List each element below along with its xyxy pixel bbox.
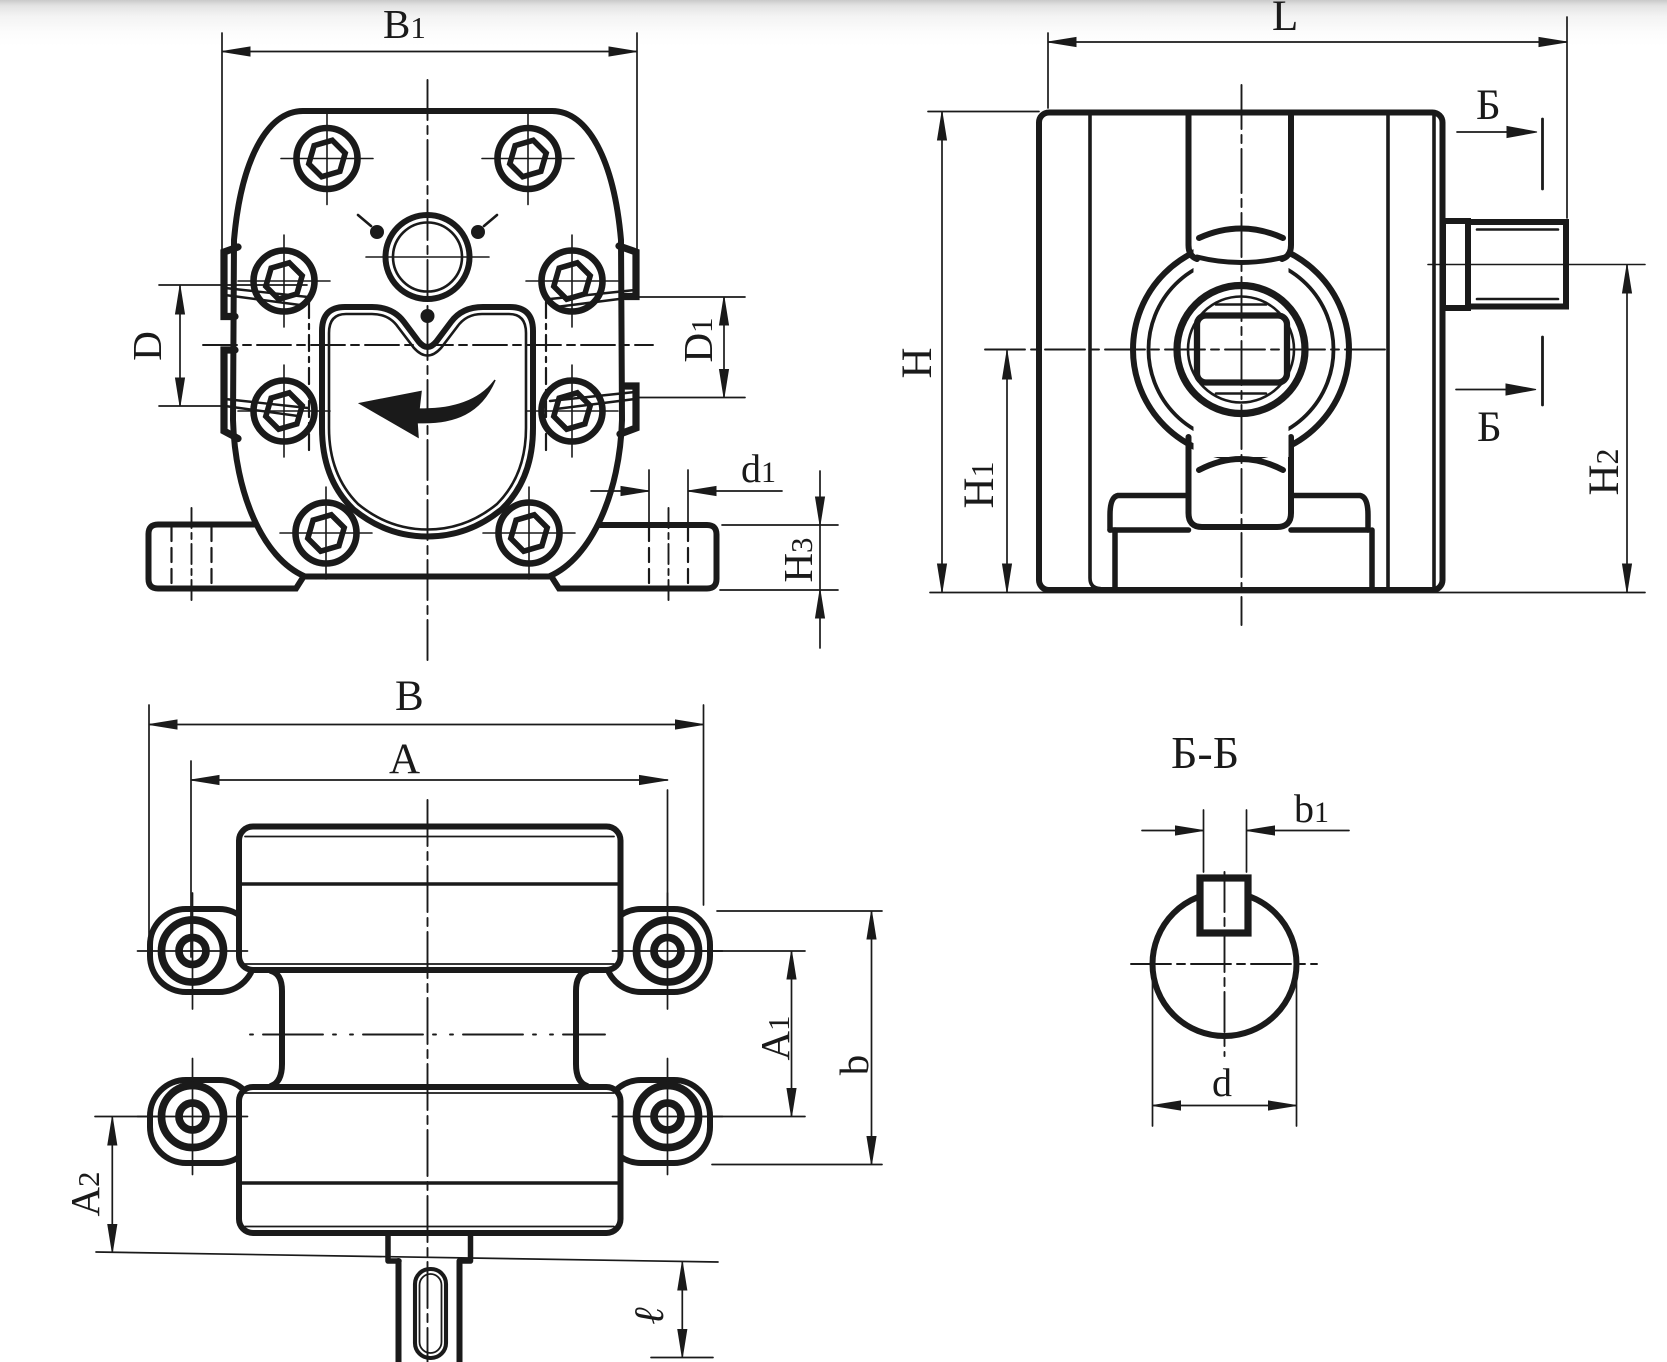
svg-text:D: D [124,331,170,361]
svg-text:Б-Б: Б-Б [1171,727,1239,778]
svg-text:H2: H2 [1581,448,1628,495]
svg-text:Б: Б [1477,404,1502,451]
svg-text:A: A [389,736,420,783]
svg-text:b: b [831,1055,877,1076]
svg-text:H: H [894,347,941,378]
svg-text:B: B [395,673,424,720]
svg-text:Б: Б [1476,82,1501,129]
svg-text:ℓ: ℓ [627,1307,673,1325]
svg-text:d: d [1212,1060,1232,1105]
svg-text:H1: H1 [956,461,1003,508]
svg-text:L: L [1272,0,1298,40]
